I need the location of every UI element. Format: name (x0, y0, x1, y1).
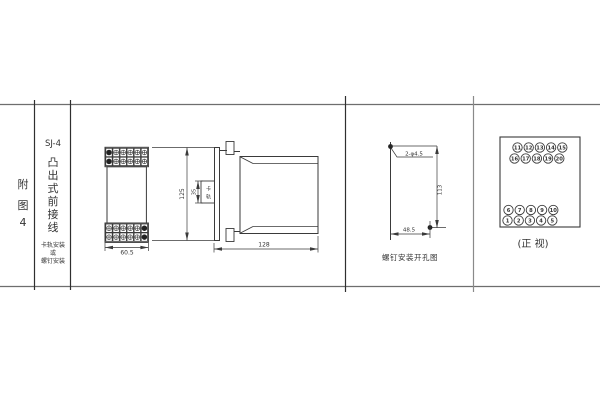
drawing-sheet: 附 图 4 SJ-4 凸 出 式 前 接 线 卡轨安装 或 螺钉安装 (0, 0, 600, 400)
mounting-line-1: 卡轨安装 (41, 241, 65, 249)
figure-char-2: 图 (18, 199, 29, 212)
terminal-4: 4 (539, 219, 543, 225)
description-char-5: 接 (48, 208, 59, 221)
rail-label-char-1: 卡 (206, 186, 211, 193)
terminal-1: 1 (506, 219, 510, 225)
terminal-12: 12 (525, 146, 533, 152)
terminal-2: 2 (517, 219, 521, 225)
description-char-6: 线 (48, 220, 59, 234)
relay-body-outline (107, 167, 146, 223)
front-flange-plate (215, 148, 220, 241)
terminal-10: 10 (550, 208, 558, 214)
rail-height-dim-text: 35 (191, 189, 197, 195)
terminal-16: 16 (511, 157, 519, 163)
description-char-2: 出 (48, 168, 59, 182)
drill-width-dim-text: 48.5 (403, 228, 416, 234)
terminal-20: 20 (556, 157, 564, 163)
terminal-6: 6 (507, 208, 511, 214)
terminal-5: 5 (550, 219, 554, 225)
terminal-11: 11 (514, 146, 522, 152)
terminal-14: 14 (547, 146, 555, 152)
terminal-18: 18 (533, 157, 541, 163)
front-width-dim-text: 60.5 (120, 250, 134, 257)
terminal-13: 13 (536, 146, 544, 152)
sheet-grid (0, 96, 600, 292)
drill-diagram: 2-φ4.5 113 48.5 螺钉安装开孔图 (382, 142, 446, 262)
mounting-line-3: 螺钉安装 (41, 257, 65, 265)
bottom-terminal-screws (106, 224, 148, 241)
top-clip (226, 142, 234, 155)
description-char-3: 式 (48, 182, 59, 195)
description-char-4: 前 (48, 194, 59, 208)
description-char-1: 凸 (48, 156, 59, 169)
terminal-view-caption: (正 视) (518, 237, 549, 250)
front-height-dim-text: 125 (179, 188, 186, 200)
terminal-9: 9 (540, 208, 544, 214)
top-chamfer (241, 157, 254, 164)
model-label: SJ-4 (45, 139, 61, 149)
terminal-face-view: 11 12 13 14 15 16 17 18 19 20 6 7 8 9 10… (500, 137, 580, 250)
figure-char-1: 附 (18, 177, 29, 191)
terminal-7: 7 (518, 208, 522, 214)
holes-label-text: 2-φ4.5 (405, 152, 423, 158)
terminal-circles (503, 143, 567, 225)
terminal-15: 15 (559, 146, 567, 152)
figure-number-column: 附 图 4 (18, 177, 29, 229)
bottom-chamfer (241, 227, 254, 234)
rail-label-char-2: 轨 (206, 194, 211, 201)
terminal-19: 19 (544, 157, 552, 163)
terminal-3: 3 (528, 219, 532, 225)
relay-case (240, 157, 318, 234)
front-view: 60.5 125 (105, 147, 216, 256)
top-terminal-screws (106, 148, 148, 165)
type-column: SJ-4 凸 出 式 前 接 线 卡轨安装 或 螺钉安装 (41, 139, 65, 265)
depth-dim-text: 128 (258, 242, 270, 249)
top-mounting-hole (388, 144, 393, 149)
terminal-17: 17 (522, 157, 530, 163)
mounting-line-2: 或 (50, 249, 56, 257)
technical-drawing-canvas: 附 图 4 SJ-4 凸 出 式 前 接 线 卡轨安装 或 螺钉安装 (0, 0, 600, 400)
bottom-clip (226, 229, 234, 242)
terminal-8: 8 (529, 208, 533, 214)
drill-diagram-caption: 螺钉安装开孔图 (382, 252, 438, 262)
side-view: 35 卡 轨 128 (191, 142, 318, 253)
figure-char-3: 4 (20, 216, 27, 229)
drill-height-dim-text: 113 (438, 184, 444, 195)
